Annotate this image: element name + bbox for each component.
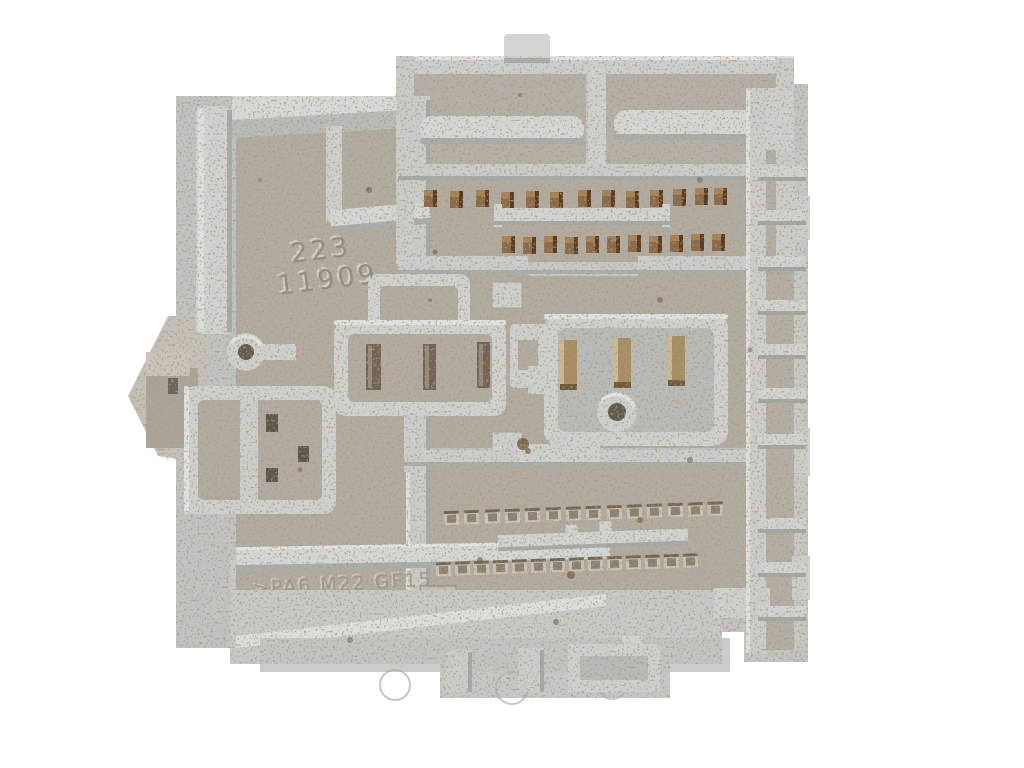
dirt-texture-overlay bbox=[120, 30, 820, 710]
fuse-box-photo: 223 223 11909 11909 >PA6 M22 GF15 >PA6 M… bbox=[0, 0, 1024, 768]
fuse-box-illustration: 223 223 11909 11909 >PA6 M22 GF15 >PA6 M… bbox=[0, 0, 1024, 768]
